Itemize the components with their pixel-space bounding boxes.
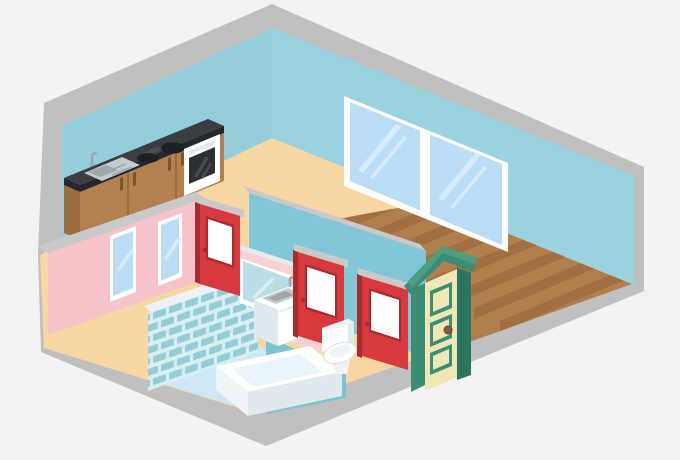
- front-door-knob-icon: [444, 326, 452, 334]
- cabinet-handle: [133, 172, 136, 186]
- front-door-jamb-right: [457, 268, 471, 380]
- door-knob-icon: [301, 298, 305, 302]
- door-edge: [293, 250, 298, 338]
- stove-burner: [161, 143, 185, 154]
- door-panel: [208, 219, 232, 265]
- door-edge: [195, 202, 200, 284]
- isometric-apartment-illustration: [0, 0, 680, 460]
- front-door-jamb-left: [411, 283, 425, 392]
- cabinet-handle: [181, 152, 184, 166]
- door-knob-icon: [365, 322, 369, 326]
- cabinet-side: [64, 185, 80, 240]
- door-knob-icon: [203, 248, 207, 252]
- red-door-1: [195, 196, 244, 296]
- door-edge: [357, 274, 362, 358]
- red-door-3: [357, 268, 412, 370]
- stove-burner: [137, 153, 159, 163]
- window-mullion: [420, 128, 430, 220]
- cabinet-handle: [168, 157, 171, 171]
- cabinet-handle: [120, 177, 123, 191]
